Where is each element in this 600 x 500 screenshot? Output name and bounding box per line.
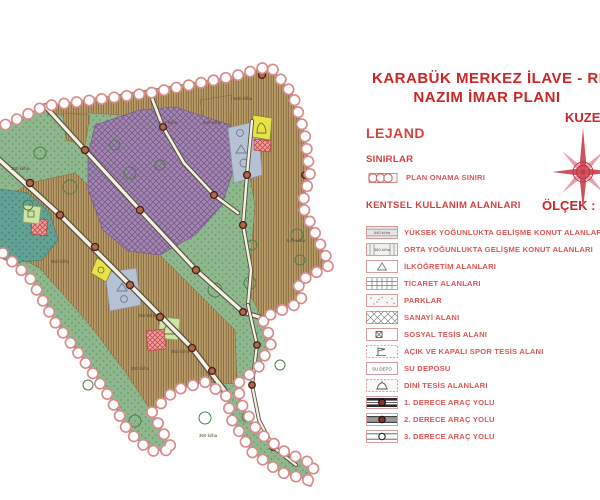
plan-boundary-circles-icon	[366, 171, 400, 185]
plan-title-line2: NAZIM İMAR PLANI	[372, 89, 600, 106]
legend-item: 3. DERECE ARAÇ YOLU	[366, 428, 600, 445]
legend-section-urban-use: KENTSEL KULLANIM ALANLARI	[366, 200, 600, 211]
plan-document: { "header": { "title_line1": "KARABÜK ME…	[0, 0, 600, 500]
svg-text:360 ki/ha: 360 ki/ha	[374, 247, 391, 252]
legend-title: LEJAND	[366, 125, 600, 141]
legend-item: SANAYİ ALANI	[366, 309, 600, 326]
legend-item-label: DİNİ TESİS ALANLARI	[404, 381, 488, 390]
legend-item-label: İLKÖĞRETİM ALANLARI	[404, 262, 496, 271]
vertical-hatch-swatch-icon: 360 ki/ha	[366, 243, 398, 256]
road-primary-swatch-icon	[366, 396, 398, 409]
water-tank-swatch-icon: SU DEPO	[366, 362, 398, 375]
legend-item: 640 ki/ha YÜKSEK YOĞUNLUKTA GELİŞME KONU…	[366, 224, 600, 241]
legend-item-label: YÜKSEK YOĞUNLUKTA GELİŞME KONUT ALANLARI	[404, 228, 600, 237]
legend-item-label: PLAN ONAMA SINIRI	[406, 173, 485, 182]
religious-parcel-yellow	[252, 115, 272, 140]
legend-item: PARKLAR	[366, 292, 600, 309]
svg-text:SU DEPO: SU DEPO	[372, 366, 392, 371]
legend-item: DİNİ TESİS ALANLARI	[366, 377, 600, 394]
road-tertiary-swatch-icon	[366, 430, 398, 443]
svg-text:360 ki/ha: 360 ki/ha	[138, 313, 157, 318]
triangle-swatch-icon	[366, 260, 398, 273]
legend-item-label: 3. DERECE ARAÇ YOLU	[404, 432, 495, 441]
legend-item-label: 2. DERECE ARAÇ YOLU	[404, 415, 495, 424]
diamond-hatch-swatch-icon	[366, 311, 398, 324]
legend-item: AÇIK VE KAPALI SPOR TESİS ALANI	[366, 343, 600, 360]
legend-item: PLAN ONAMA SINIRI	[366, 170, 600, 185]
legend-item-label: SANAYİ ALANI	[404, 313, 459, 322]
legend-panel: LEJAND SINIRLAR PLAN ONAMA SINIRI KENTSE…	[366, 125, 600, 445]
svg-text:360 ki/ha: 360 ki/ha	[131, 366, 150, 371]
legend-item-label: TİCARET ALANLARI	[404, 279, 481, 288]
mosque-dome-swatch-icon	[366, 379, 398, 392]
grid-swatch-icon	[366, 277, 398, 290]
legend-item: TİCARET ALANLARI	[366, 275, 600, 292]
legend-item: 2. DERECE ARAÇ YOLU	[366, 411, 600, 428]
horizontal-hatch-swatch-icon: 640 ki/ha	[366, 226, 398, 239]
legend-item-label: PARKLAR	[404, 296, 442, 305]
svg-text:640 ki/ha: 640 ki/ha	[287, 238, 306, 243]
plan-title-line1: KARABÜK MERKEZ İLAVE - REV	[372, 70, 600, 87]
legend-item-label: AÇIK VE KAPALI SPOR TESİS ALANI	[404, 347, 544, 356]
zoning-map: 613 ki/ha540 ki/ha640 ki/ha640 ki/ha360 …	[0, 55, 366, 500]
svg-text:640 ki/ha: 640 ki/ha	[374, 230, 391, 235]
dots-swatch-icon	[366, 294, 398, 307]
legend-item: 360 ki/ha ORTA YOĞUNLUKTA GELİŞME KONUT …	[366, 241, 600, 258]
legend-item: 1. DERECE ARAÇ YOLU	[366, 394, 600, 411]
legend-item: İLKÖĞRETİM ALANLARI	[366, 258, 600, 275]
social-parcel-red	[254, 139, 271, 152]
square-x-swatch-icon	[366, 328, 398, 341]
svg-text:540 ki/ha: 540 ki/ha	[203, 120, 222, 125]
svg-text:360 ki/ha: 360 ki/ha	[11, 166, 30, 171]
flag-swatch-icon	[366, 345, 398, 358]
legend-section-borders: SINIRLAR	[366, 154, 600, 165]
religious-parcel-red	[146, 329, 166, 351]
svg-text:640 ki/ha: 640 ki/ha	[234, 96, 253, 101]
legend-item: SU DEPO SU DEPOSU	[366, 360, 600, 377]
legend-item-label: SU DEPOSU	[404, 364, 451, 373]
svg-text:360 ki/ha: 360 ki/ha	[199, 433, 218, 438]
legend-item-label: ORTA YOĞUNLUKTA GELİŞME KONUT ALANLARI	[404, 245, 593, 254]
svg-text:360 ki/ha: 360 ki/ha	[171, 349, 190, 354]
legend-item-label: SOSYAL TESİS ALANI	[404, 330, 487, 339]
legend-item-label: 1. DERECE ARAÇ YOLU	[404, 398, 495, 407]
svg-text:360 ki/ha: 360 ki/ha	[51, 259, 70, 264]
legend-item: SOSYAL TESİS ALANI	[366, 326, 600, 343]
svg-text:613 ki/ha: 613 ki/ha	[159, 120, 178, 125]
road-secondary-swatch-icon	[366, 413, 398, 426]
